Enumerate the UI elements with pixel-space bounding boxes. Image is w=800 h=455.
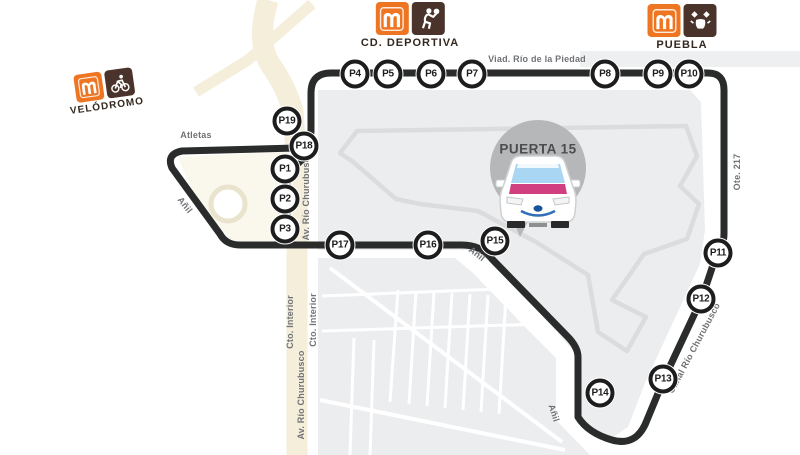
stop-marker-p13: P13 — [649, 365, 678, 394]
stop-marker-p10: P10 — [675, 60, 704, 89]
stop-marker-p6: P6 — [417, 60, 446, 89]
street-label: Atletas — [180, 130, 211, 140]
street-label: Av. Río Churubusco — [301, 151, 311, 240]
gate-label: PUERTA 15 — [499, 142, 576, 157]
stop-marker-p5: P5 — [374, 60, 403, 89]
cyclist-icon — [104, 67, 136, 99]
stop-marker-p19: P19 — [273, 107, 302, 136]
metro-logo-icon — [375, 2, 408, 35]
stop-marker-p12: P12 — [687, 285, 716, 314]
metro-logo-icon — [648, 4, 681, 37]
athlete-icon — [411, 2, 444, 35]
street-label: Viad. Río de la Piedad — [488, 54, 586, 64]
stop-marker-p14: P14 — [586, 379, 615, 408]
station-name: PUEBLA — [656, 39, 707, 51]
stop-marker-p1: P1 — [271, 155, 300, 184]
route-map: PUERTA 15 Viad. Río de la PiedadAtletasA… — [0, 0, 800, 455]
stop-marker-p17: P17 — [326, 231, 355, 260]
metro-logo-icon — [73, 71, 105, 103]
stop-marker-p15: P15 — [481, 227, 510, 256]
roundabout — [211, 187, 245, 221]
street-label: Ote. 217 — [732, 154, 742, 191]
stop-marker-p8: P8 — [591, 60, 620, 89]
stop-marker-p2: P2 — [271, 185, 300, 214]
stop-marker-p3: P3 — [271, 215, 300, 244]
metro-station-puebla: PUEBLA — [648, 4, 717, 51]
stop-marker-p11: P11 — [704, 239, 733, 268]
stop-marker-p4: P4 — [341, 60, 370, 89]
street-label: Cto. Interior — [285, 295, 295, 349]
street-label: Av. Río Churubusco — [296, 350, 306, 439]
talavera-icon — [684, 4, 717, 37]
metro-station-cd-deportiva: CD. DEPORTIVA — [361, 2, 459, 49]
street-label: Cto. Interior — [308, 293, 318, 347]
stop-marker-p18: P18 — [290, 132, 319, 161]
stop-marker-p16: P16 — [414, 231, 443, 260]
stop-marker-p9: P9 — [644, 60, 673, 89]
station-name: CD. DEPORTIVA — [361, 37, 459, 49]
stop-marker-p7: P7 — [458, 60, 487, 89]
